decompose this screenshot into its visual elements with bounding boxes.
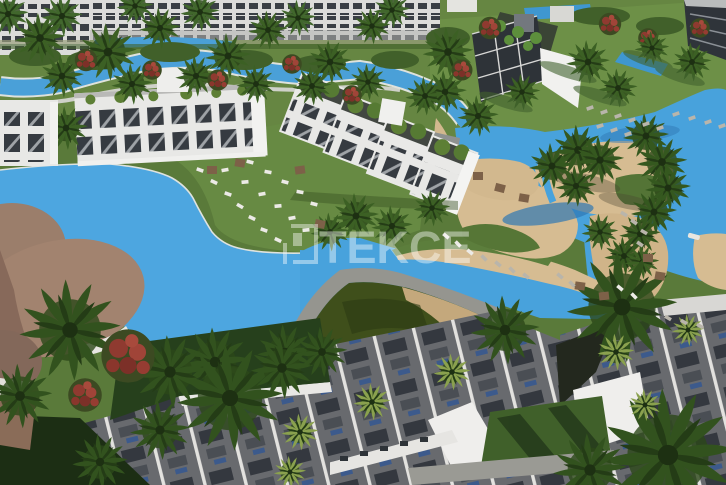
svg-text:TEKCE: TEKCE [319,222,472,273]
